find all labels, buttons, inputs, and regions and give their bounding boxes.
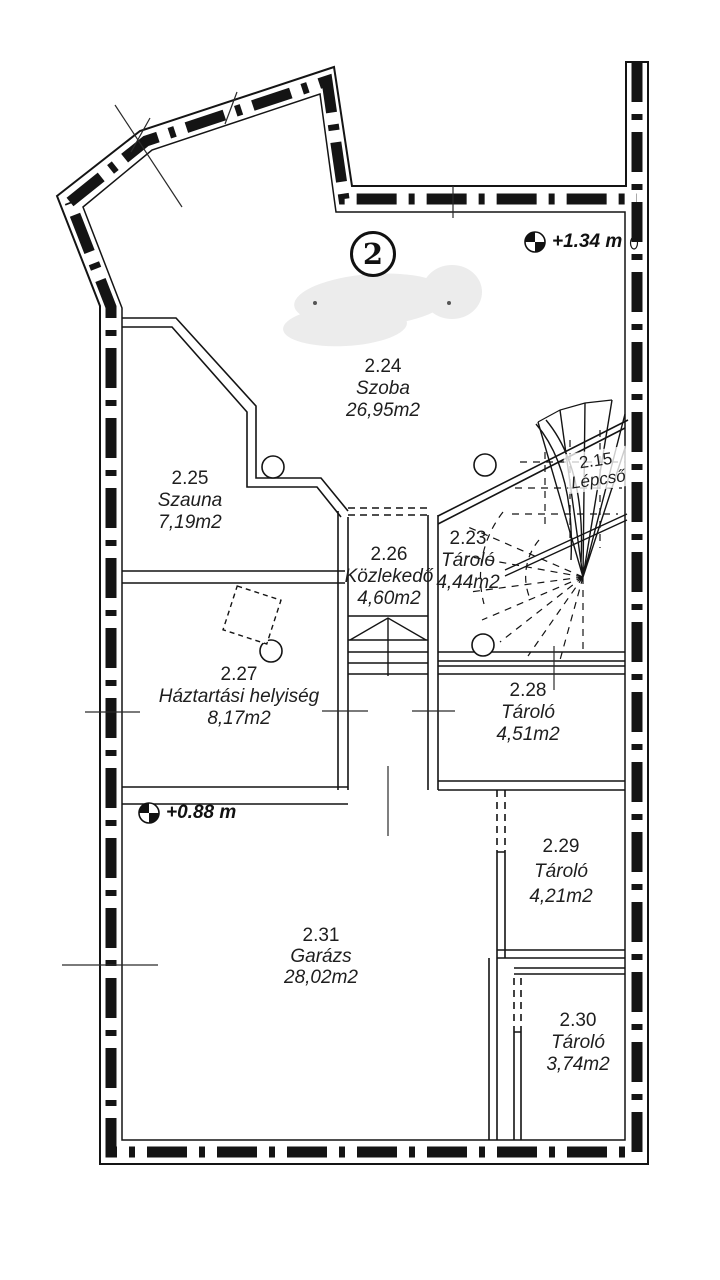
floor-plan-page: 2 +1.34 m +0.88 m 2.24 Szoba 26,95m2 2.2… xyxy=(0,0,720,1280)
room-area: 4,60m2 xyxy=(345,588,434,610)
floor-plan-drawing xyxy=(0,0,720,1280)
room-name: Tároló xyxy=(546,1032,609,1054)
room-name: Szauna xyxy=(158,490,222,512)
room-label-garazs: 2.31 Garázs 28,02m2 xyxy=(284,925,358,988)
room-area: 4,44m2 xyxy=(436,572,499,594)
room-number: 2.25 xyxy=(158,468,222,490)
room-area: 7,19m2 xyxy=(158,512,222,534)
room-area: 26,95m2 xyxy=(346,400,420,422)
corridor-stair xyxy=(348,616,428,676)
benchmark-icon xyxy=(524,231,546,253)
room-area: 4,21m2 xyxy=(529,884,592,909)
room-name: Tároló xyxy=(529,859,592,884)
diamond-symbol xyxy=(223,586,281,644)
room-label-tarolo-223: 2.23 Tároló 4,44m2 xyxy=(436,528,499,594)
room-area: 8,17m2 xyxy=(159,708,320,730)
benchmark-icon xyxy=(138,802,160,824)
erased-blob xyxy=(282,265,482,349)
room-number: 2.24 xyxy=(346,356,420,378)
room-area: 4,51m2 xyxy=(496,724,559,746)
room-number: 2.29 xyxy=(529,834,592,859)
unit-number: 2 xyxy=(363,237,383,271)
room-name: Háztartási helyiség xyxy=(159,686,320,708)
room-label-tarolo-228: 2.28 Tároló 4,51m2 xyxy=(496,680,559,746)
room-name: Szoba xyxy=(346,378,420,400)
room-label-tarolo-229: 2.29 Tároló 4,21m2 xyxy=(529,834,592,909)
room-label-kozlekedo: 2.26 Közlekedő 4,60m2 xyxy=(345,544,434,610)
room-area: 28,02m2 xyxy=(284,967,358,988)
lamp-circle xyxy=(262,456,284,478)
room-number: 2.28 xyxy=(496,680,559,702)
outer-walls xyxy=(57,62,648,1164)
room-number: 2.27 xyxy=(159,664,320,686)
room-label-tarolo-230: 2.30 Tároló 3,74m2 xyxy=(546,1010,609,1076)
lamp-circle xyxy=(472,634,494,656)
room-number: 2.30 xyxy=(546,1010,609,1032)
level-value: +1.34 m xyxy=(552,231,622,253)
level-marker-lower: +0.88 m xyxy=(138,802,236,824)
lamp-circle xyxy=(474,454,496,476)
level-marker-upper: +1.34 m xyxy=(524,231,622,253)
room-number: 2.26 xyxy=(345,544,434,566)
room-name: Tároló xyxy=(436,550,499,572)
room-label-szoba: 2.24 Szoba 26,95m2 xyxy=(346,356,420,422)
room-name: Garázs xyxy=(284,946,358,967)
room-name: Tároló xyxy=(496,702,559,724)
unit-number-badge: 2 xyxy=(350,231,396,277)
room-number: 2.31 xyxy=(284,925,358,946)
room-number: 2.23 xyxy=(436,528,499,550)
room-label-szauna: 2.25 Szauna 7,19m2 xyxy=(158,468,222,534)
room-name: Közlekedő xyxy=(345,566,434,588)
lamp-circle xyxy=(260,640,282,662)
room-label-haztartasi: 2.27 Háztartási helyiség 8,17m2 xyxy=(159,664,320,730)
room-area: 3,74m2 xyxy=(546,1054,609,1076)
level-value: +0.88 m xyxy=(166,802,236,824)
